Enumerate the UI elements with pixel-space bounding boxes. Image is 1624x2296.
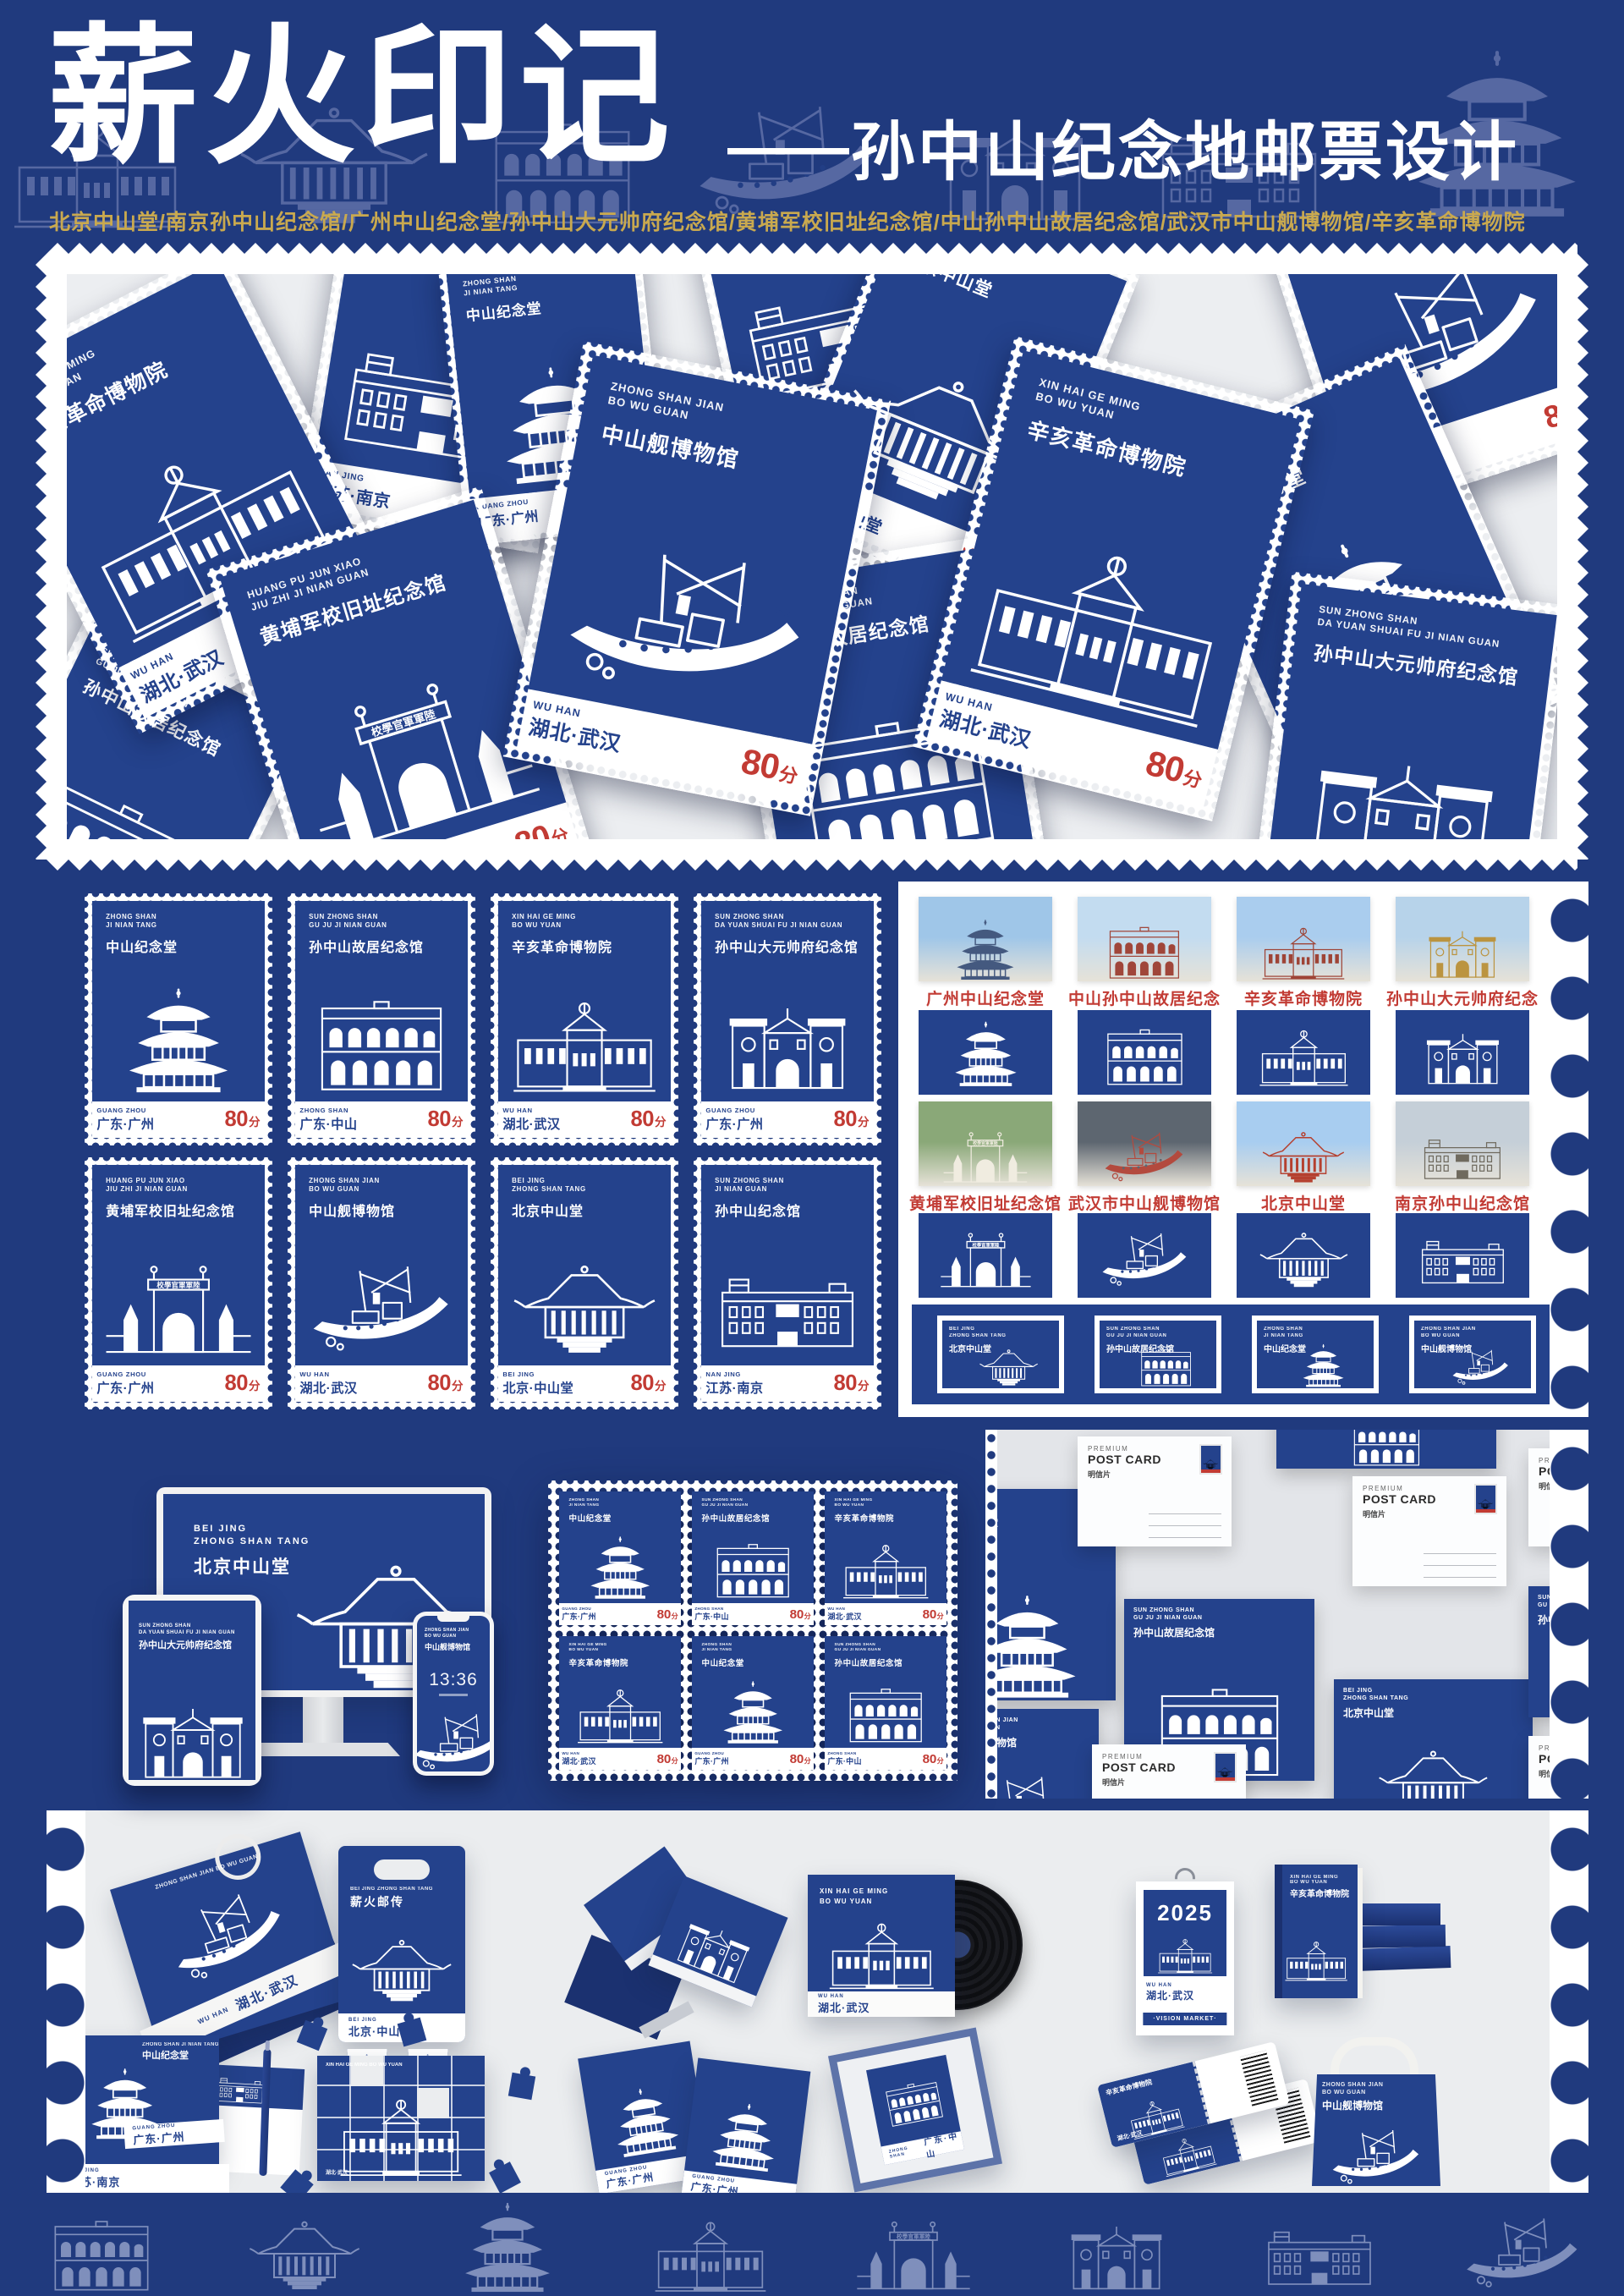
poster: 薪火印记 —— 孙中山纪念地邮票设计 北京中山堂/南京孙中山纪念馆/广州中山纪念… <box>0 0 1624 2296</box>
ticket-title: 辛亥革命博物院 <box>1105 2078 1153 2098</box>
western-illustration <box>1281 1924 1351 1993</box>
bag-region-en: WU HAN <box>196 2005 229 2025</box>
s-reg-en: NAN JING <box>705 1370 763 1378</box>
postcard-blue: SUN ZHONG SHANGU JU JI NIAN GUAN孙中山故居纪念馆 <box>1276 1430 1496 1469</box>
phone-notch <box>437 1616 469 1622</box>
stamp-guju: SUN ZHONG SHANGU JU JI NIAN GUAN孙中山故居纪念馆… <box>825 1636 946 1770</box>
western-illustration <box>830 1535 941 1601</box>
stamp-art: ZHONG SHANJI NIAN TANG中山纪念堂 <box>92 901 265 1101</box>
address-lines <box>1424 1542 1496 1578</box>
stamp-title: ZHONG SHAN JIANBO WU GUAN中山舰博物馆 <box>599 380 856 495</box>
s-en: BO WU YUAN <box>512 921 661 930</box>
postcard-brand: PREMIUMPOST CARD明信片 <box>1102 1753 1176 1788</box>
postcard-panel: ZHONG SHANJI NIAN TANG中山纪念堂ZHONG SHAN JI… <box>997 1430 1588 1799</box>
colonnade-illustration <box>1290 1430 1484 1469</box>
stamp-dys: SUN ZHONG SHANDA YUAN SHUAI FU JI NIAN G… <box>694 893 881 1145</box>
framed-print: ZHONG SHAN 广东·中山 <box>828 2028 1002 2193</box>
stamp-value: 80分 <box>923 1607 944 1622</box>
stamp-region: NAN JING江苏·南京 <box>705 1370 763 1397</box>
poster-subtitle: —— 孙中山纪念地邮票设计 <box>727 100 1519 193</box>
phone-mockup: ZHONG SHAN JIAN BO WU GUAN 中山舰博物馆 13:36 <box>413 1612 494 1776</box>
stamp-title: SUN ZHONG SHANDA YUAN SHUAI FU JI NIAN G… <box>715 913 864 956</box>
frame-region-zh: 广东·中山 <box>923 2128 965 2160</box>
banner-card-art: BEI JINGZHONG SHAN TANG北京中山堂 <box>942 1321 1059 1388</box>
frame-teeth-bottom <box>47 860 1577 871</box>
s-en: ZHONG SHAN JIAN <box>309 1177 458 1185</box>
stamp-xinhai: XIN HAI GE MINGBO WU YUAN辛亥革命博物院WU HAN湖北… <box>559 1636 681 1770</box>
notebook: XIN HAI GE MING BO WU YUAN 辛亥革命博物院 <box>1275 1865 1358 1998</box>
ship-illustration <box>1087 1123 1202 1186</box>
pagoda-illustration <box>936 1020 1035 1088</box>
phone-clock: 13:36 <box>417 1670 490 1690</box>
stamp-value: 80分 <box>657 1607 678 1622</box>
ship-illustration <box>997 1766 1089 1799</box>
v-num: 80 <box>738 740 783 788</box>
v-num: 80 <box>657 1607 671 1622</box>
header: 薪火印记 —— 孙中山纪念地邮票设计 北京中山堂/南京孙中山纪念馆/广州中山纪念… <box>0 0 1624 250</box>
skyline-colonnade-icon <box>8 2210 195 2294</box>
stamp-title: XIN HAI GE MINGBO WU YUAN辛亥革命博物院 <box>512 913 661 956</box>
stamp-region: GUANG ZHOU广东·广州 <box>705 1107 763 1133</box>
s-reg-zh: 广东·中山 <box>299 1114 357 1133</box>
tote-en2: BO WU GUAN <box>1322 2089 1383 2096</box>
stamp-title: SUN ZHONG SHANGU JU JI NIAN GUAN孙中山故居纪念馆 <box>309 913 458 956</box>
v-num: 80 <box>427 1107 450 1132</box>
site-photo <box>1396 897 1529 981</box>
s-zh: 中山纪念堂 <box>569 1512 674 1524</box>
s-en: SUN ZHONG SHAN <box>715 1177 864 1185</box>
stamp-value: 80分 <box>1539 387 1557 437</box>
envelope-text: ZHONG SHAN JI NIAN TANG 中山纪念堂 <box>142 2042 219 2062</box>
stamp-art-tile <box>919 1010 1052 1095</box>
banner-card-title: ZHONG SHANJI NIAN TANG中山纪念堂 <box>1264 1327 1306 1354</box>
stamp-region: GUANG ZHOU广东·广州 <box>96 1370 154 1397</box>
stamp-title: SUN ZHONG SHANJI NIAN GUAN孙中山纪念馆 <box>715 1177 864 1220</box>
stamp-region: GUANG ZHOU广东·广州 <box>96 1107 154 1133</box>
carrier-handle-hole <box>374 1859 430 1880</box>
stamp-title: XIN HAI GE MINGBO WU YUAN辛亥革命博物院 <box>835 1498 940 1524</box>
perforation-strip-right <box>1550 882 1588 1417</box>
stamp-value: 80分 <box>427 1371 463 1396</box>
postcard-title: SUN ZHONG SHANGU JU JI NIAN GUAN孙中山故居纪念馆 <box>1133 1607 1215 1640</box>
s-en: GU JU JI NIAN GUAN <box>702 1503 807 1508</box>
v-unit: 分 <box>672 1612 678 1621</box>
stamp-bj: BEI JINGZHONG SHAN TANG北京中山堂BEI JING北京·中… <box>491 1157 678 1409</box>
bc-zh: 中山纪念堂 <box>1264 1342 1306 1354</box>
stamp-value: 80分 <box>224 1371 260 1396</box>
monitor-en1: BEI JING <box>194 1523 310 1535</box>
stamp-art: SUN ZHONG SHANGU JU JI NIAN GUAN孙中山故居纪念馆 <box>295 901 468 1101</box>
stamp-title: ZHONG SHANJI NIAN TANG中山纪念堂 <box>702 1643 807 1668</box>
stamp-art: BEI JINGZHONG SHAN TANG北京中山堂 <box>498 1165 671 1365</box>
pcb-en: ZHONG SHAN TANG <box>1343 1695 1408 1702</box>
stamp-banner: BEI JINGZHONG SHAN TANG北京中山堂SUN ZHONG SH… <box>912 1305 1561 1404</box>
tablet-en1: SUN ZHONG SHAN <box>139 1623 235 1629</box>
s-en: SUN ZHONG SHAN <box>309 913 458 921</box>
puzzle-missing-piece <box>351 2056 383 2086</box>
skyline-ship-icon <box>1429 2205 1616 2294</box>
stamp-dys: SUN ZHONG SHANDA YUAN SHUAI FU JI NIAN G… <box>1246 572 1557 839</box>
subtitle-text: 孙中山纪念地邮票设计 <box>851 100 1519 193</box>
s-zh: 中山舰博物馆 <box>309 1200 458 1220</box>
s-reg-zh: 江苏·南京 <box>705 1378 763 1397</box>
stamp-guju: SUN ZHONG SHANGU JU JI NIAN GUAN孙中山故居纪念馆… <box>692 1491 814 1625</box>
pb2: POST CARD <box>1102 1760 1176 1774</box>
postcard-stamp <box>1199 1444 1222 1475</box>
stamp-value: 80分 <box>427 1107 463 1132</box>
bc-en: JI NIAN TANG <box>1264 1333 1306 1340</box>
postcard-blue: ZHONG SHAN JIANBO WU GUAN中山舰博物馆 <box>997 1709 1099 1799</box>
modern-illustration <box>708 1243 867 1359</box>
vinyl-en1: XIN HAI GE MING <box>820 1887 888 1897</box>
stamp-label: GUANG ZHOU广东·广州80分 <box>692 1748 814 1770</box>
western-illustration <box>1254 1020 1353 1088</box>
banner-card-art: ZHONG SHAN JIANBO WU GUAN中山舰博物馆 <box>1414 1321 1531 1388</box>
tablet-mockup: SUN ZHONG SHAN DA YUAN SHUAI FU JI NIAN … <box>123 1595 261 1786</box>
postcard-title: BEI JINGZHONG SHAN TANG北京中山堂 <box>1343 1687 1408 1720</box>
s-en: BO WU YUAN <box>569 1648 674 1653</box>
colonnade-illustration <box>830 1680 941 1745</box>
skyline-modern-icon <box>1226 2210 1413 2294</box>
archway-illustration <box>928 1123 1043 1186</box>
phone-screen: ZHONG SHAN JIAN BO WU GUAN 中山舰博物馆 13:36 <box>417 1616 490 1771</box>
phone-en1: ZHONG SHAN JIAN <box>425 1628 470 1634</box>
postcard-brand: PREMIUMPOST CARD明信片 <box>1088 1445 1161 1480</box>
tote-bag: ZHONG SHAN JIAN BO WU GUAN 中山舰博物馆 <box>1312 2074 1440 2186</box>
stamp-label: ZHONG SHAN广东·中山80分 <box>825 1748 946 1770</box>
ship-illustration <box>1314 2120 1438 2189</box>
site-photo <box>1237 1101 1370 1186</box>
v-unit: 分 <box>249 1376 261 1393</box>
v-unit: 分 <box>937 1756 944 1766</box>
stamp-label: WU HAN湖北·武汉80分 <box>559 1748 681 1770</box>
s-reg-en: GUANG ZHOU <box>96 1370 154 1378</box>
s-zh: 孙中山故居纪念馆 <box>702 1512 807 1524</box>
skyline-hall-icon <box>211 2210 398 2294</box>
skyline-western-icon <box>617 2210 804 2294</box>
phone-en2: BO WU GUAN <box>425 1634 470 1640</box>
pcb-zh: 中山舰博物馆 <box>997 1735 1018 1749</box>
ship-illustration <box>1095 1223 1194 1291</box>
colonnade-illustration <box>1095 1020 1194 1088</box>
pb1: PREMIUM <box>1102 1753 1176 1760</box>
v-num: 80 <box>630 1107 653 1132</box>
hall-illustration <box>505 1243 664 1359</box>
pagoda-illustration <box>99 979 258 1096</box>
stamp-art: ZHONG SHAN JIANBO WU GUAN中山舰博物馆山中 <box>529 355 877 744</box>
photo-caption: 黄埔军校旧址纪念馆 <box>906 1191 1065 1214</box>
stamp-label: ZHONG SHAN广东·中山80分 <box>295 1101 468 1138</box>
ship-illustration <box>302 1243 461 1359</box>
puzzle-title: XIN HAI GE MING BO WU YUAN <box>326 2063 403 2068</box>
stamp-region: WU HAN湖北·武汉 <box>827 1607 861 1622</box>
barcode-icon <box>1240 2051 1279 2106</box>
stamp-label: WU HAN湖北·武汉80分 <box>295 1365 468 1402</box>
s-en: JI NIAN TANG <box>106 921 255 930</box>
v-num: 80 <box>833 1107 856 1132</box>
stamp-title: HUANG PU JUN XIAOJIU ZHI JI NIAN GUAN黄埔军… <box>106 1177 255 1220</box>
western-illustration <box>815 1912 948 1991</box>
pcb-zh: 中山纪念堂 <box>997 1515 998 1530</box>
archway-illustration <box>99 1243 258 1359</box>
s-reg-zh: 广东·广州 <box>96 1114 154 1133</box>
stamp-value: 80分 <box>630 1107 666 1132</box>
vinyl-sleeve: XIN HAI GE MING BO WU YUAN WU HAN 湖北·武汉 <box>808 1875 955 2017</box>
v-num: 80 <box>923 1607 936 1622</box>
stamp-art: SUN ZHONG SHANJI NIAN GUAN孙中山纪念馆 <box>701 1165 874 1365</box>
banner-card-art: ZHONG SHANJI NIAN TANG中山纪念堂 <box>1257 1321 1374 1388</box>
poster-title: 薪火印记 <box>47 19 677 177</box>
s-zh: 孙中山故居纪念馆 <box>309 936 458 956</box>
v-num: 80 <box>790 1607 804 1622</box>
photo-caption: 武汉市中山舰博物馆 <box>1065 1191 1224 1214</box>
pcb-en: ZHONG SHAN <box>997 1497 998 1504</box>
stamp-value: 80分 <box>790 1607 811 1622</box>
pagoda-illustration <box>997 1578 1105 1700</box>
stamp-art: XIN HAI GE MINGBO WU YUAN辛亥革命博物院 <box>825 1491 946 1603</box>
photo-caption: 辛亥革命博物院 <box>1224 986 1383 1009</box>
s-en: GU JU JI NIAN GUAN <box>309 921 458 930</box>
vinyl-en2: BO WU YUAN <box>820 1897 888 1907</box>
stamp-grid-section: 广州中山纪念堂中山孙中山故居纪念馆辛亥革命博物院孙中山大元帅府纪念馆黄埔军校旧址… <box>47 882 1588 1417</box>
carrier-en: BEI JING ZHONG SHAN TANG <box>350 1887 433 1892</box>
stamp-region: GUANG ZHOU广东·广州 <box>562 1607 595 1622</box>
stamp-label: WU HAN湖北·武汉80分 <box>498 1101 671 1138</box>
pb3: 明信片 <box>1088 1469 1161 1480</box>
stamp-art-tile <box>1237 1010 1370 1095</box>
s-zh: 孙中山纪念馆 <box>715 1200 864 1220</box>
v-num: 80 <box>833 1371 856 1396</box>
western-illustration <box>326 2086 476 2179</box>
tablet-screen-text: SUN ZHONG SHAN DA YUAN SHUAI FU JI NIAN … <box>139 1623 235 1651</box>
v-unit: 分 <box>655 1376 667 1393</box>
v-unit: 分 <box>937 1612 944 1621</box>
skyline-gate-icon <box>1023 2210 1210 2294</box>
postcard-brand: PREMIUMPOST CARD明信片 <box>1363 1485 1436 1519</box>
postcard-title: ZHONG SHAN JIANBO WU GUAN中山舰博物馆 <box>997 1717 1018 1749</box>
calendar-cover: 2025 <box>1144 1890 1226 1976</box>
s-en: BEI JING <box>512 1177 661 1185</box>
s-reg-zh: 广东·广州 <box>705 1114 763 1133</box>
stamp-value: 80分 <box>630 1371 666 1396</box>
mockup-section: BEI JING ZHONG SHAN TANG 北京中山堂 SUN ZHONG… <box>47 1430 1588 1799</box>
s-reg-en: GUANG ZHOU <box>96 1107 154 1114</box>
s-reg-zh: 湖北·武汉 <box>562 1755 595 1766</box>
stamp-region: ZHONG SHAN广东·中山 <box>299 1107 357 1133</box>
v-unit: 分 <box>249 1112 261 1129</box>
pb3: 明信片 <box>1363 1508 1436 1519</box>
phone-screen-text: ZHONG SHAN JIAN BO WU GUAN 中山舰博物馆 <box>425 1628 470 1652</box>
stamp-label: GUANG ZHOU广东·广州80分 <box>92 1365 265 1402</box>
banner-card-art: SUN ZHONG SHANGU JU JI NIAN GUAN孙中山故居纪念馆 <box>1100 1321 1216 1388</box>
gate-illustration <box>129 1690 255 1780</box>
stamp-value: 80分 <box>511 813 573 839</box>
pcb-en: SUN ZHONG SHAN <box>1133 1607 1215 1614</box>
backing-region-zh: 江苏·南京 <box>69 2173 229 2189</box>
bc-en: ZHONG SHAN TANG <box>949 1333 1007 1340</box>
frame-region-strip: ZHONG SHAN 广东·中山 <box>881 2131 964 2165</box>
frame-teeth-right <box>1577 254 1588 860</box>
pagoda-illustration <box>697 1680 809 1745</box>
s-reg-zh: 湖北·武汉 <box>827 1611 861 1622</box>
calendar-hook-icon <box>1175 1868 1195 1888</box>
s-reg-zh: 湖北·武汉 <box>299 1378 357 1397</box>
site-photo <box>919 1101 1052 1186</box>
site-photo <box>1078 897 1211 981</box>
modern-illustration <box>1405 1123 1520 1186</box>
s-en: SUN ZHONG SHAN <box>715 913 864 921</box>
tablet-screen: SUN ZHONG SHAN DA YUAN SHUAI FU JI NIAN … <box>129 1601 255 1780</box>
stamp-value: 80分 <box>1142 742 1208 795</box>
stamp-value: 80分 <box>790 1752 811 1766</box>
merch-section: ZHONG SHAN JIAN BO WU GUAN WU HAN 湖北·武汉 … <box>47 1810 1588 2193</box>
monitor-en2: ZHONG SHAN TANG <box>194 1535 310 1548</box>
cup-carrier: BEI JING ZHONG SHAN TANG 薪火邮传 BEI JING 北… <box>338 1846 465 2042</box>
bc-zh: 北京中山堂 <box>949 1342 1007 1354</box>
stamp-region: WU HAN湖北·武汉 <box>502 1107 560 1133</box>
s-en: JI NIAN TANG <box>702 1648 807 1653</box>
stamp-title: SUN ZHONG SHANDA YUAN SHUAI FU JI NIAN G… <box>1312 604 1539 692</box>
pb3: 明信片 <box>1102 1777 1176 1788</box>
monitor-zh: 北京中山堂 <box>194 1553 310 1579</box>
gate-illustration <box>1276 704 1533 839</box>
bc-en: BEI JING <box>949 1327 1007 1333</box>
stamp-title: ZHONG SHANJI NIAN TANG中山纪念堂 <box>462 274 627 325</box>
ship-illustration <box>417 1704 490 1771</box>
stamp-art: ZHONG SHANJI NIAN TANG中山纪念堂 <box>692 1636 814 1748</box>
stamp-region: WU HAN湖北·武汉 <box>299 1370 357 1397</box>
stamp-label: GUANG ZHOU广东·广州80分 <box>92 1101 265 1138</box>
s-reg-en: ZHONG SHAN <box>299 1107 357 1114</box>
v-num: 80 <box>1539 393 1557 437</box>
footer-skyline <box>0 2201 1624 2294</box>
gate-illustration <box>1405 919 1520 981</box>
stamp-nj: SUN ZHONG SHANJI NIAN GUAN孙中山纪念馆NAN JING… <box>694 1157 881 1409</box>
stamp-art-tile <box>1078 1213 1211 1298</box>
gate-illustration <box>708 979 867 1096</box>
stamp-art-tile <box>919 1213 1052 1298</box>
stamp-art: SUN ZHONG SHANDA YUAN SHUAI FU JI NIAN G… <box>1264 584 1557 839</box>
v-unit: 分 <box>452 1376 464 1393</box>
stamp-region: ZHONG SHAN广东·中山 <box>827 1751 861 1766</box>
s-reg-zh: 湖北·武汉 <box>502 1114 560 1133</box>
hall-illustration <box>1346 1739 1521 1799</box>
stamp-region: BEI JING北京·中山堂 <box>502 1370 573 1397</box>
s-reg-en: WU HAN <box>299 1370 357 1378</box>
bc-zh: 孙中山故居纪念馆 <box>1106 1342 1174 1354</box>
s-en: ZHONG SHAN TANG <box>512 1185 661 1194</box>
stamp-label: GUANG ZHOU广东·广州80分 <box>559 1603 681 1625</box>
s-reg-zh: 北京·中山堂 <box>502 1378 573 1397</box>
pcb-en: BEI JING <box>1343 1687 1408 1695</box>
stamp-title: SUN ZHONG SHANGU JU JI NIAN GUAN孙中山故居纪念馆 <box>835 1643 940 1668</box>
s-reg-zh: 广东·广州 <box>562 1611 595 1622</box>
s-zh: 中山纪念堂 <box>702 1656 807 1668</box>
s-en: ZHONG SHAN <box>106 913 255 921</box>
hall-illustration <box>1216 1761 1233 1777</box>
s-en: HUANG PU JUN XIAO <box>106 1177 255 1185</box>
stamp-collage: XIN HAI GE MINGBO WU YUAN辛亥革命博物院WU HAN湖北… <box>67 274 1557 839</box>
s-en: BO WU YUAN <box>835 1503 940 1508</box>
western-illustration <box>505 979 664 1096</box>
western-illustration <box>1149 1933 1221 1975</box>
banner-card-title: SUN ZHONG SHANGU JU JI NIAN GUAN孙中山故居纪念馆 <box>1106 1327 1174 1354</box>
s-reg-en: BEI JING <box>502 1370 573 1378</box>
stamp-art-tile <box>1237 1213 1370 1298</box>
stamp-title: ZHONG SHAN JIANBO WU GUAN中山舰博物馆 <box>309 1177 458 1220</box>
book-spine <box>1351 1925 1446 1948</box>
stamp-region: WU HAN湖北·武汉 <box>526 699 626 758</box>
stamp-jnt: ZHONG SHANJI NIAN TANG中山纪念堂GUANG ZHOU广东·… <box>85 893 272 1145</box>
s-en: DA YUAN SHUAI FU JI NIAN GUAN <box>715 921 864 930</box>
stamp-art: SUN ZHONG SHANGU JU JI NIAN GUAN孙中山故居纪念馆 <box>692 1491 814 1603</box>
pcb-zh: 孙中山故居纪念馆 <box>1133 1625 1215 1640</box>
vinyl-region-zh: 湖北·武汉 <box>818 1999 955 2015</box>
banner-card: ZHONG SHANJI NIAN TANG中山纪念堂 <box>1252 1316 1379 1393</box>
stamp-title: SUN ZHONG SHANGU JU JI NIAN GUAN孙中山故居纪念馆 <box>702 1498 807 1524</box>
v-num: 80 <box>224 1107 247 1132</box>
s-en: XIN HAI GE MING <box>512 913 661 921</box>
s-zh: 北京中山堂 <box>512 1200 661 1220</box>
v-num: 80 <box>427 1371 450 1396</box>
site-photo <box>919 897 1052 981</box>
stamp-collage-frame: XIN HAI GE MINGBO WU YUAN辛亥革命博物院WU HAN湖北… <box>47 254 1577 860</box>
bc-en: ZHONG SHAN <box>1264 1327 1306 1333</box>
bc-en: BO WU GUAN <box>1421 1333 1476 1340</box>
stamp-value: 80分 <box>833 1371 869 1396</box>
v-num: 80 <box>224 1371 247 1396</box>
v-unit: 分 <box>804 1756 811 1766</box>
stamp-xinhai: XIN HAI GE MINGBO WU YUAN辛亥革命博物院WU HAN湖北… <box>825 1491 946 1625</box>
postcard-title: ZHONG SHANJI NIAN TANG中山纪念堂 <box>997 1497 998 1530</box>
western-illustration <box>564 1680 676 1745</box>
banner-card-title: ZHONG SHAN JIANBO WU GUAN中山舰博物馆 <box>1421 1327 1476 1354</box>
perforation-divider <box>985 1430 997 1799</box>
stamp-art: XIN HAI GE MINGBO WU YUAN辛亥革命博物院 <box>498 901 671 1101</box>
colonnade-illustration <box>875 2066 953 2138</box>
vinyl-title: XIN HAI GE MING BO WU YUAN <box>820 1887 888 1907</box>
site-photo <box>1396 1101 1529 1186</box>
site-photo <box>1078 1101 1211 1186</box>
s-en: JI NIAN TANG <box>569 1503 674 1508</box>
v-unit: 分 <box>548 821 572 839</box>
stamp-art-tile <box>1078 1010 1211 1095</box>
stamp-title: ZHONG SHANJI NIAN TANG中山纪念堂 <box>106 913 255 956</box>
v-unit: 分 <box>804 1612 811 1621</box>
tablet-zh: 孙中山大元帅府纪念馆 <box>139 1638 235 1651</box>
stamp-jnt: ZHONG SHANJI NIAN TANG中山纪念堂GUANG ZHOU广东·… <box>692 1636 814 1770</box>
site-photo <box>1237 897 1370 981</box>
book-spine <box>1356 1946 1451 1971</box>
stamp-region: WU HAN湖北·武汉 <box>562 1751 595 1766</box>
pagoda-illustration <box>928 919 1043 981</box>
pcb-en: BO WU GUAN <box>997 1724 1018 1732</box>
s-reg-zh: 广东·广州 <box>694 1755 728 1766</box>
address-lines <box>1149 1502 1221 1538</box>
stamp-value: 80分 <box>224 1107 260 1132</box>
perforation-strip-left <box>47 1810 85 2193</box>
v-num: 80 <box>630 1371 653 1396</box>
phone-zh: 中山舰博物馆 <box>425 1641 470 1652</box>
hall-illustration <box>1254 1223 1353 1291</box>
stamp-label: WU HAN湖北·武汉80分 <box>825 1603 946 1625</box>
pagoda-illustration <box>691 2090 800 2183</box>
pcb-en: JI NIAN TANG <box>997 1504 998 1512</box>
colonnade-illustration <box>1087 919 1202 981</box>
perforation-strip-right <box>1550 1430 1588 1799</box>
bc-zh: 中山舰博物馆 <box>1421 1342 1476 1354</box>
monitor-screen-text: BEI JING ZHONG SHAN TANG 北京中山堂 <box>194 1523 310 1579</box>
